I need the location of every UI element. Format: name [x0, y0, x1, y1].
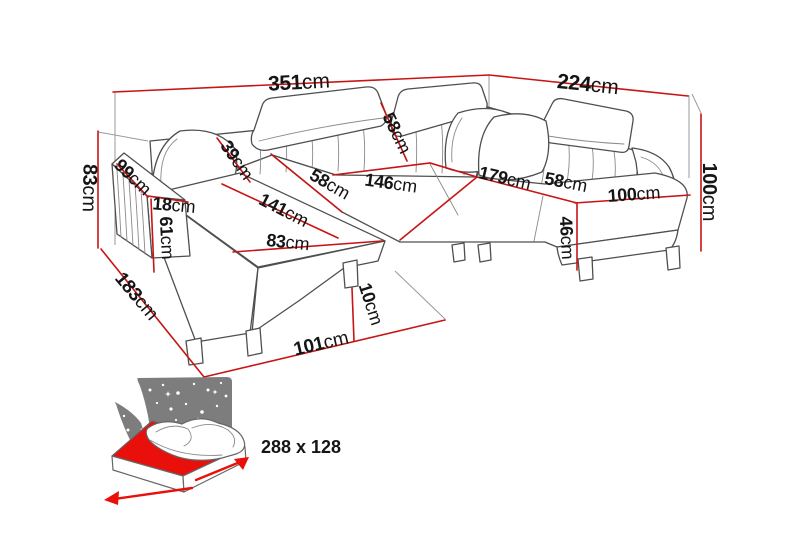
dim-label-armrest-width: 18cm [152, 193, 197, 217]
sofa-leg [343, 260, 358, 288]
width-arrow [114, 488, 192, 499]
dim-label-overall-depth-right: 224cm [556, 70, 620, 99]
dim-label-seat-height: 46cm [556, 216, 578, 260]
sleeping-area-label: 288 x 128 [261, 437, 341, 457]
sofa-leg [452, 243, 465, 262]
dim-label-height-right: 100cm [698, 163, 720, 222]
dim-label-chaise-width-right: 100cm [607, 182, 661, 206]
dim-label-side-depth-left: 183cm [110, 268, 162, 324]
sleeping-function-icon: 288 x 128 [104, 377, 341, 505]
diagram-page: 351cm224cm83cm99cm18cm61cm39cm58cm58cm14… [0, 0, 800, 533]
dim-label-leg-height: 10cm [355, 280, 387, 327]
bed-icon [104, 419, 249, 505]
dim-label-overall-width: 351cm [268, 70, 331, 96]
sofa-dimension-diagram: 351cm224cm83cm99cm18cm61cm39cm58cm58cm14… [0, 0, 800, 533]
sofa-leg [186, 338, 203, 365]
dim-label-front-width: 101cm [292, 327, 351, 360]
sofa-leg [578, 257, 593, 281]
sofa-leg [666, 246, 680, 270]
dim-label-height-left: 83cm [78, 164, 101, 213]
dim-label-armrest-height: 61cm [156, 216, 178, 260]
dim-line-leg-height [352, 288, 354, 341]
sofa-leg [246, 328, 262, 356]
sofa-leg [478, 243, 491, 262]
